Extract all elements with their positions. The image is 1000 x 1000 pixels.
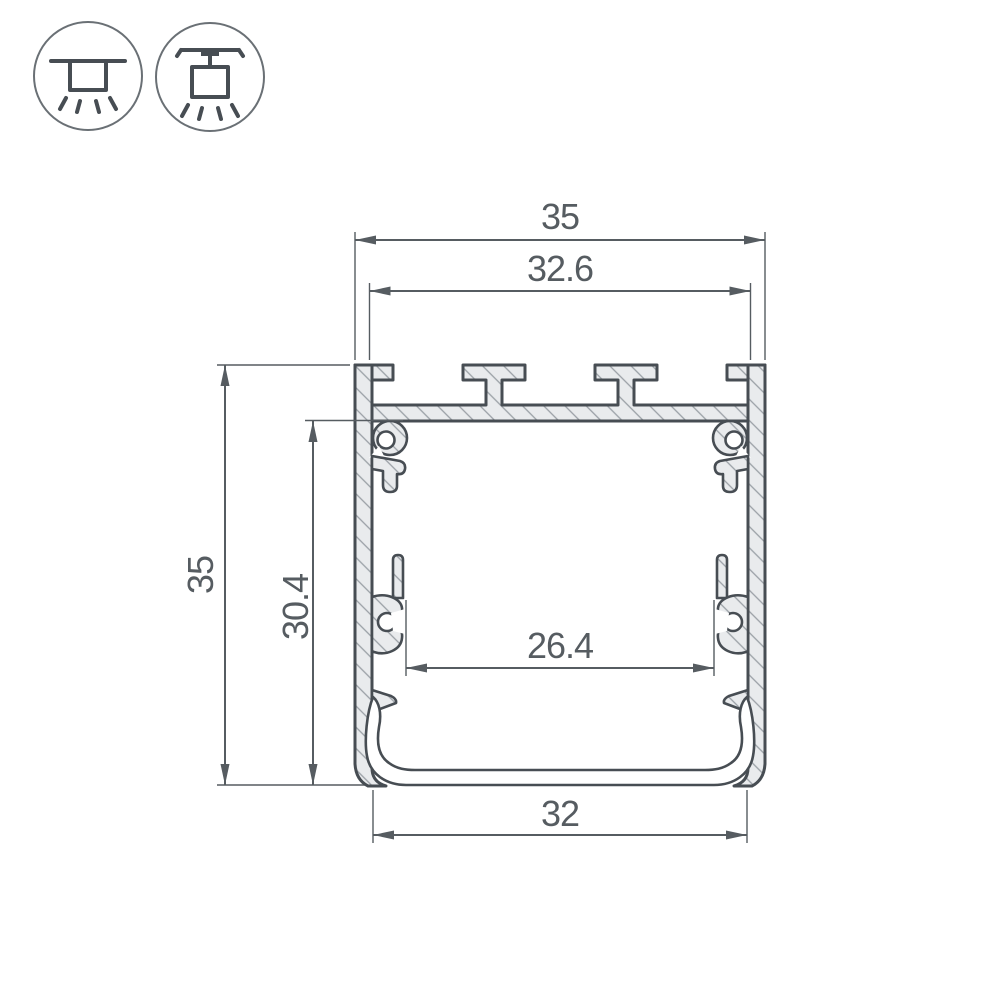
luminaire-body — [192, 67, 228, 97]
luminaire-body — [70, 61, 106, 90]
dim-label-inner-width: 26.4 — [527, 625, 593, 666]
icon-circle-border — [156, 23, 264, 131]
light-rays — [182, 105, 238, 119]
pendant-mount-luminaire-icon — [156, 23, 264, 131]
dim-label-outer-width: 35 — [541, 196, 579, 237]
dimension-outer-width: 35 — [355, 196, 765, 245]
technical-drawing-page: 35 32.6 35 30.4 26.4 32 — [0, 0, 1000, 1000]
dimension-inner-width: 26.4 — [406, 625, 714, 673]
upper-screw-boss-right — [713, 421, 751, 492]
icon-circle-border — [34, 22, 142, 130]
upper-screw-boss-left — [369, 421, 407, 492]
middle-screw-boss-left — [372, 555, 405, 653]
middle-screw-boss-right — [715, 555, 748, 653]
profile-drawing-canvas: 35 32.6 35 30.4 26.4 32 — [0, 0, 1000, 1000]
extension-lines — [217, 232, 765, 843]
dimension-outer-height: 35 — [180, 365, 230, 785]
dim-label-inner-height: 30.4 — [275, 574, 316, 640]
light-rays — [60, 98, 116, 112]
dimension-inner-height: 30.4 — [275, 421, 318, 785]
dim-label-bottom-width: 32 — [541, 793, 579, 834]
dimension-bottom-width: 32 — [373, 793, 747, 840]
dimension-inner-top-width: 32.6 — [370, 248, 751, 296]
dim-label-outer-height: 35 — [180, 556, 221, 594]
diffuser — [366, 697, 754, 785]
top-plate-with-tabs — [355, 365, 765, 421]
surface-mount-luminaire-icon — [34, 22, 142, 130]
profile-cross-section — [355, 365, 765, 786]
dim-label-inner-top-width: 32.6 — [527, 248, 593, 289]
